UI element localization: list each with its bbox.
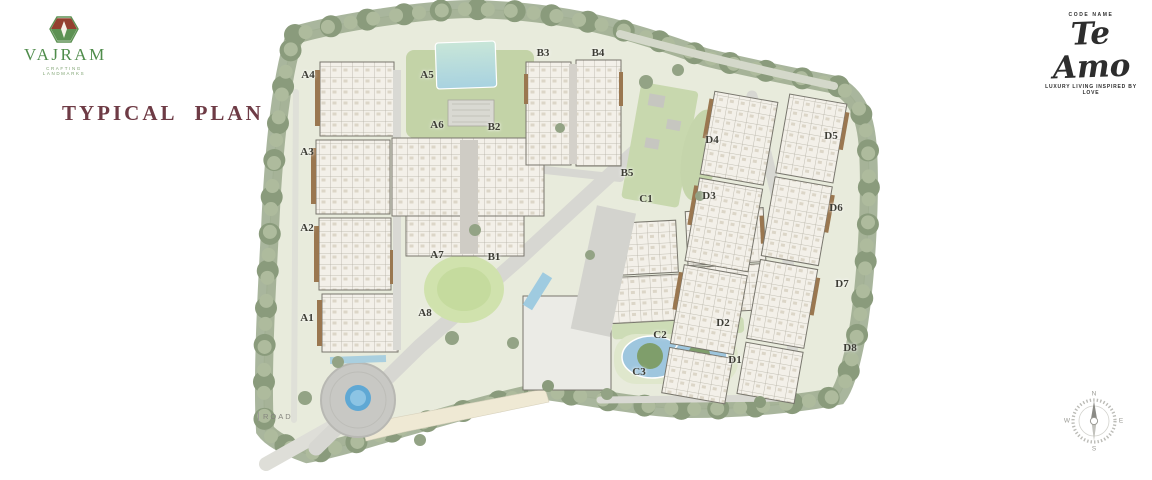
block-label-b3: B3 xyxy=(537,47,550,59)
block-label-b4: B4 xyxy=(592,47,605,59)
block-label-d7: D7 xyxy=(835,278,848,290)
block-label-c1: C1 xyxy=(639,193,652,205)
compass-icon xyxy=(1064,390,1124,452)
block-label-a3: A3 xyxy=(300,146,313,158)
block-label-a5: A5 xyxy=(420,69,433,81)
siteplan-drawing xyxy=(0,0,1152,480)
page-title: TYPICAL PLAN xyxy=(62,101,264,126)
block-label-a8: A8 xyxy=(418,307,431,319)
swimming-pool xyxy=(435,41,497,89)
compass-n: N xyxy=(1092,391,1097,398)
block-label-a1: A1 xyxy=(300,312,313,324)
compass-s: S xyxy=(1092,446,1096,453)
block-label-c2: C2 xyxy=(653,329,666,341)
brand-name: Te Amo xyxy=(1035,16,1147,85)
block-label-d2: D2 xyxy=(716,317,729,329)
logo-name: VAJRAM xyxy=(24,45,104,65)
teamo-brand: CODE NAME Te Amo LUXURY LIVING INSPIRED … xyxy=(1036,12,1146,96)
road-label: ROAD xyxy=(258,412,293,421)
block-label-b5: B5 xyxy=(621,167,634,179)
block-label-b1: B1 xyxy=(488,251,501,263)
typical-plan-page: VAJRAM CRAFTING LANDMARKS TYPICAL PLAN C… xyxy=(0,0,1152,480)
block-label-d6: D6 xyxy=(829,202,842,214)
compass-e: E xyxy=(1119,418,1123,425)
block-label-d1: D1 xyxy=(728,354,741,366)
block-label-a2: A2 xyxy=(300,222,313,234)
block-label-a4: A4 xyxy=(301,69,314,81)
compass-w: W xyxy=(1064,418,1070,425)
block-label-a7: A7 xyxy=(430,249,443,261)
vajram-logo: VAJRAM CRAFTING LANDMARKS xyxy=(24,16,104,76)
compass: N E S W xyxy=(1064,390,1124,452)
block-label-d3: D3 xyxy=(702,190,715,202)
block-label-d8: D8 xyxy=(843,342,856,354)
block-label-d5: D5 xyxy=(824,130,837,142)
block-label-d4: D4 xyxy=(705,134,718,146)
block-label-c3: C3 xyxy=(632,366,645,378)
logo-tagline: CRAFTING LANDMARKS xyxy=(24,66,104,76)
block-label-b2: B2 xyxy=(488,121,501,133)
vajram-gem-icon xyxy=(49,16,79,43)
block-label-a6: A6 xyxy=(430,119,443,131)
